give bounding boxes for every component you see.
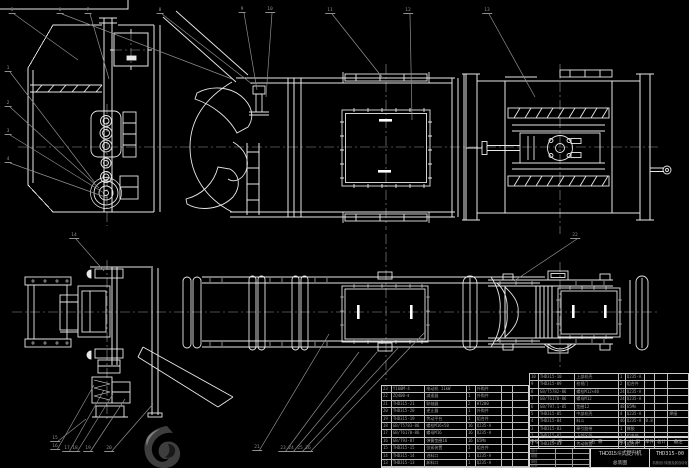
bom-cell: Y160M-4 (392, 386, 426, 392)
part-callout: 10 (265, 7, 275, 13)
bom-cell: 组合件 (476, 416, 503, 422)
bom-cell: THD315-20 (392, 408, 426, 414)
bom-cell: Q235-A (626, 374, 645, 380)
bom-cell: GB/T97.1-85 (539, 404, 576, 410)
bom-cell (668, 381, 688, 387)
bom-cell (645, 411, 656, 417)
bom-cell: 16 (382, 438, 392, 444)
part-callout: 11 (325, 8, 335, 14)
bom-cell: 电动机 11kW (425, 386, 466, 392)
bom-cell: 减速器 (425, 393, 466, 399)
center-lines (12, 30, 660, 420)
bom-row: 5THD315-05中部机壳4Q235-A焊接 (530, 410, 688, 417)
bom-row: 16GB/T93-87弹簧垫圈161665Mn (382, 437, 528, 444)
bom-cell: THD315-04 (539, 418, 576, 424)
bom-cell: GB/T6170-86 (392, 430, 426, 436)
bom-cell: THD315-15 (392, 445, 426, 451)
part-callout: 19 (83, 446, 93, 452)
bom-cell (645, 396, 656, 402)
bom-cell: THD315-10 (539, 374, 576, 380)
bom-cell: 23 (382, 386, 392, 392)
bom-cell (645, 404, 656, 410)
bom-cell: 焊接 (668, 411, 688, 417)
bom-cell: GB/T5782-86 (539, 389, 576, 395)
bom-row: 10THD315-10上部机壳1Q235-A (530, 374, 688, 380)
bom-row: 6GB/T97.1-85垫圈124865Mn (530, 403, 688, 410)
bom-cell: 22 (382, 393, 392, 399)
top-view (28, 11, 671, 223)
bom-cell: THD315-05 (539, 411, 576, 417)
bom-cell: 1 (619, 426, 626, 432)
part-callout: 8 (157, 8, 164, 14)
bom-cell (513, 453, 528, 459)
bom-row: 4THD315-04料斗46Q235-A0.8 (530, 417, 688, 424)
bom-cell: 65Mn (626, 404, 645, 410)
part-callout: 18 (70, 446, 80, 452)
bom-cell (513, 401, 528, 407)
bom-cell: 1 (467, 453, 476, 459)
bom-table-left: 23Y160M-4电动机 11kW1外购件22ZQ400-Ⅱ减速器1外购件21T… (381, 385, 529, 468)
bom-cell: 上部机壳 (575, 374, 618, 380)
bom-cell (645, 374, 656, 380)
bom-row: 17GB/T6170-86螺母M1616Q235-A (382, 429, 528, 436)
bom-cell (513, 423, 528, 429)
organization: 机械设计制造及其自动化 (650, 459, 689, 467)
bom-cell: 螺母M12 (575, 396, 618, 402)
product-title: THD315斗式提升机 (591, 449, 649, 459)
bom-cell (668, 404, 688, 410)
part-callout: 15 (50, 436, 60, 442)
part-callout: 3 (5, 129, 12, 135)
bom-cell: 16 (467, 438, 476, 444)
bom-cell: 13 (382, 460, 392, 466)
bom-cell (513, 438, 528, 444)
bom-cell: THD315-03 (539, 426, 576, 432)
bom-cell: 1 (467, 386, 476, 392)
part-callout: 12 (403, 8, 413, 14)
bom-cell: 牵引胶带 (575, 426, 618, 432)
bom-cell (502, 423, 513, 429)
bom-cell (513, 445, 528, 451)
bom-row: 22ZQ400-Ⅱ减速器1外购件 (382, 392, 528, 399)
bom-cell: Q235-A (476, 430, 503, 436)
bom-cell: GB/T93-87 (392, 438, 426, 444)
doc-type: 总装图 (591, 459, 649, 468)
bom-cell: 18 (382, 423, 392, 429)
bom-cell (502, 430, 513, 436)
bom-cell: 传动平台 (425, 416, 466, 422)
bom-cell: THD315-19 (392, 416, 426, 422)
part-callout: 1 (5, 66, 12, 72)
bom-cell: 1 (467, 445, 476, 451)
bom-cell: Q235-A (626, 396, 645, 402)
bom-cell (513, 416, 528, 422)
watermark-logo (144, 426, 180, 468)
bom-cell: 1 (467, 393, 476, 399)
bom-cell (502, 438, 513, 444)
bom-cell (513, 393, 528, 399)
bom-cell (502, 408, 513, 414)
bom-cell: 外购件 (476, 386, 503, 392)
frame-corner (0, 0, 128, 9)
part-callout: 2 (5, 101, 12, 107)
bom-cell: 24 (619, 389, 626, 395)
bom-cell: 46 (619, 418, 626, 424)
bom-cell: 16 (467, 423, 476, 429)
bom-row: 8GB/T5782-86螺栓M12×4024Q235-A (530, 388, 688, 395)
bom-cell (668, 374, 688, 380)
bom-row: 20THD315-20逆止器1外购件 (382, 407, 528, 414)
bom-cell (645, 426, 656, 432)
bom-cell: 9 (530, 381, 539, 387)
bom-row: 21THD315-21联轴器2HT200 (382, 400, 528, 407)
bom-cell: 1 (467, 408, 476, 414)
bom-cell (513, 460, 528, 466)
bom-cell: 橡胶 (626, 426, 645, 432)
drawing-number: THD315-00 (650, 449, 689, 459)
title-block: 设计制图审核批准 THD315斗式提升机 总装图 THD315-00 机械设计制… (529, 437, 689, 468)
bom-cell (655, 389, 668, 395)
bom-cell: Q235-A (626, 411, 645, 417)
bom-cell (513, 430, 528, 436)
bom-cell (502, 393, 513, 399)
bom-row: 3THD315-03牵引胶带1橡胶 (530, 425, 688, 432)
bom-cell: 张紧装置 (425, 445, 466, 451)
part-callout: 21 (252, 445, 262, 451)
bom-cell: 17 (382, 430, 392, 436)
bom-cell: 组合件 (476, 445, 503, 451)
bom-cell (513, 408, 528, 414)
bom-cell: 2 (619, 381, 626, 387)
bom-cell: 1 (467, 416, 476, 422)
bom-cell: 螺栓M12×40 (575, 389, 618, 395)
bom-cell: Q235-A (626, 389, 645, 395)
bom-cell: 进料口 (425, 453, 466, 459)
bom-table-right: 10THD315-10上部机壳1Q235-A9THD315-09检视门2组合件8… (529, 373, 689, 437)
bom-cell: 1 (619, 374, 626, 380)
bom-cell: 19 (382, 416, 392, 422)
bom-cell: 16 (467, 430, 476, 436)
part-callout: 16 (50, 444, 60, 450)
bom-cell (502, 401, 513, 407)
bom-cell: 垫圈12 (575, 404, 618, 410)
bom-cell: Q235-A (626, 418, 645, 424)
bom-cell (502, 416, 513, 422)
bom-row: 18GB/T5783-86螺栓M16×5016Q235-A (382, 422, 528, 429)
bom-cell: Q235-A (476, 453, 503, 459)
part-callout: 5 (9, 8, 16, 14)
part-callout: 6 (57, 8, 64, 14)
bom-cell: 65Mn (476, 438, 503, 444)
bom-cell: 检视门 (575, 381, 618, 387)
bom-cell (502, 460, 513, 466)
part-callout: 13 (482, 8, 492, 14)
bom-cell (655, 411, 668, 417)
bom-cell: GB/T6170-86 (539, 396, 576, 402)
bom-cell: GB/T5783-86 (392, 423, 426, 429)
bom-cell (668, 418, 688, 424)
bom-cell: 6 (530, 404, 539, 410)
bom-cell (655, 381, 668, 387)
bom-cell: 24 (619, 396, 626, 402)
bom-cell: 组合件 (626, 381, 645, 387)
bom-cell: 中部机壳 (575, 411, 618, 417)
bom-cell (502, 386, 513, 392)
bom-cell: 10 (530, 374, 539, 380)
bom-cell: THD315-13 (392, 460, 426, 466)
bom-cell (655, 396, 668, 402)
bom-cell (655, 404, 668, 410)
bom-cell: 外购件 (476, 393, 503, 399)
bom-cell: 螺栓M16×50 (425, 423, 466, 429)
bom-cell (645, 389, 656, 395)
bom-cell: 弹簧垫圈16 (425, 438, 466, 444)
part-callout: 4 (5, 157, 12, 163)
part-callout: 26 (303, 446, 313, 452)
bom-cell: 20 (382, 408, 392, 414)
bom-cell (668, 426, 688, 432)
part-callout: 22 (570, 233, 580, 239)
bom-row: 23Y160M-4电动机 11kW1外购件 (382, 386, 528, 392)
signature-grid: 设计制图审核批准 (530, 449, 590, 468)
bom-cell: 卸料口 (425, 460, 466, 466)
part-callout: 9 (239, 7, 246, 13)
bom-cell (502, 453, 513, 459)
bom-cell: THD315-14 (392, 453, 426, 459)
bom-cell: THD315-21 (392, 401, 426, 407)
cad-drawing-canvas: 23Y160M-4电动机 11kW1外购件22ZQ400-Ⅱ减速器1外购件21T… (0, 0, 689, 468)
bom-cell: 逆止器 (425, 408, 466, 414)
bom-row: 15THD315-15张紧装置1组合件 (382, 444, 528, 451)
bom-cell: THD315-09 (539, 381, 576, 387)
bom-cell: 3 (530, 426, 539, 432)
bom-cell: 4 (619, 411, 626, 417)
bom-row: 14THD315-14进料口1Q235-A (382, 452, 528, 459)
bom-cell: 15 (382, 445, 392, 451)
bom-cell (668, 389, 688, 395)
bom-cell (502, 445, 513, 451)
bom-row: 19THD315-19传动平台1组合件 (382, 415, 528, 422)
bom-cell: HT200 (476, 401, 503, 407)
bom-cell: Q235-A (476, 423, 503, 429)
part-callout: 14 (69, 233, 79, 239)
bom-cell (655, 374, 668, 380)
bom-cell (513, 386, 528, 392)
bom-cell: 1 (467, 460, 476, 466)
bom-cell (655, 426, 668, 432)
bom-cell: Q235-A (476, 460, 503, 466)
bom-cell: 螺母M16 (425, 430, 466, 436)
bom-cell: 2 (467, 401, 476, 407)
bom-cell: 外购件 (476, 408, 503, 414)
bom-cell (655, 418, 668, 424)
bom-cell (645, 381, 656, 387)
bom-cell: 4 (530, 418, 539, 424)
bom-cell (668, 396, 688, 402)
bom-cell: 料斗 (575, 418, 618, 424)
bom-cell: 21 (382, 401, 392, 407)
bom-row: 13THD315-13卸料口1Q235-A (382, 459, 528, 466)
bom-cell: 联轴器 (425, 401, 466, 407)
bom-cell: ZQ400-Ⅱ (392, 393, 426, 399)
bom-cell: 8 (530, 389, 539, 395)
part-callout: 20 (104, 446, 114, 452)
part-callout: 7 (85, 8, 92, 14)
bom-cell: 0.8 (645, 418, 656, 424)
bom-cell: 14 (382, 453, 392, 459)
bom-cell: 48 (619, 404, 626, 410)
bom-cell: 7 (530, 396, 539, 402)
bom-row: 9THD315-09检视门2组合件 (530, 380, 688, 387)
bom-row: 7GB/T6170-86螺母M1224Q235-A (530, 395, 688, 402)
bom-cell: 5 (530, 411, 539, 417)
